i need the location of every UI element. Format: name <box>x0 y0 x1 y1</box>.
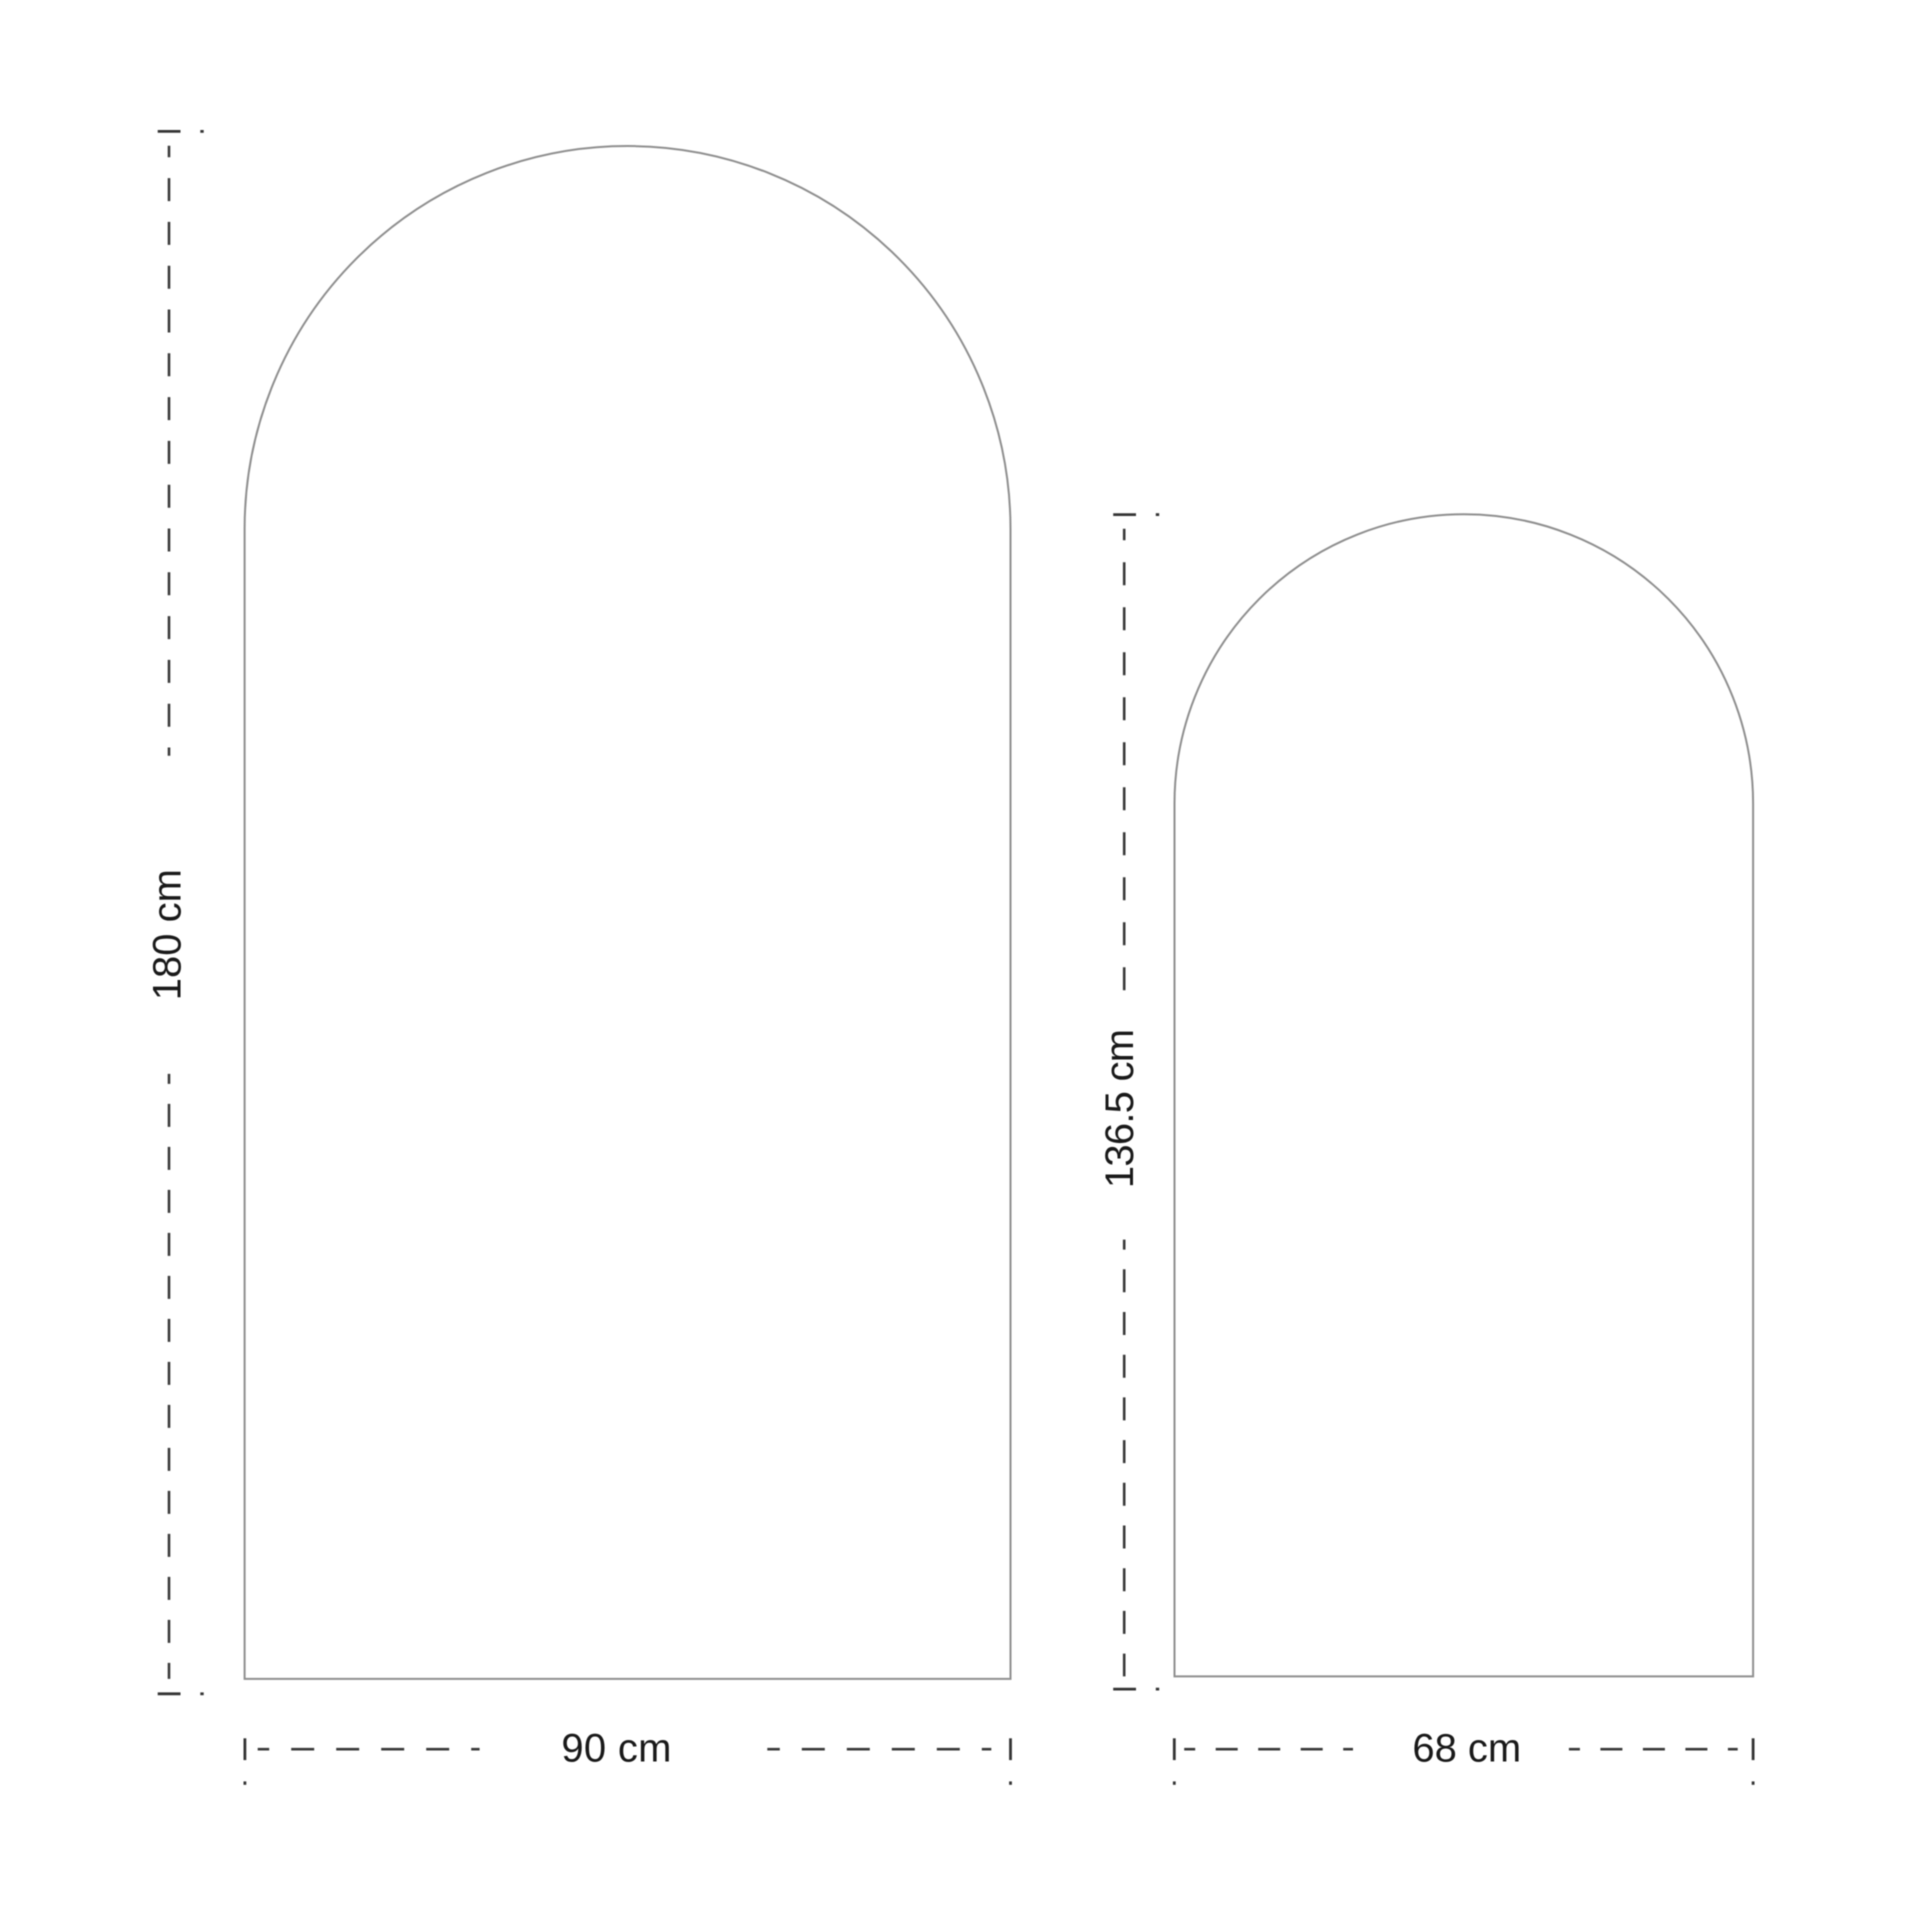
svg-text:90 cm: 90 cm <box>561 1727 671 1771</box>
svg-text:180 cm: 180 cm <box>146 869 190 1000</box>
svg-text:136.5 cm: 136.5 cm <box>1098 1030 1142 1189</box>
svg-text:68 cm: 68 cm <box>1412 1727 1521 1771</box>
